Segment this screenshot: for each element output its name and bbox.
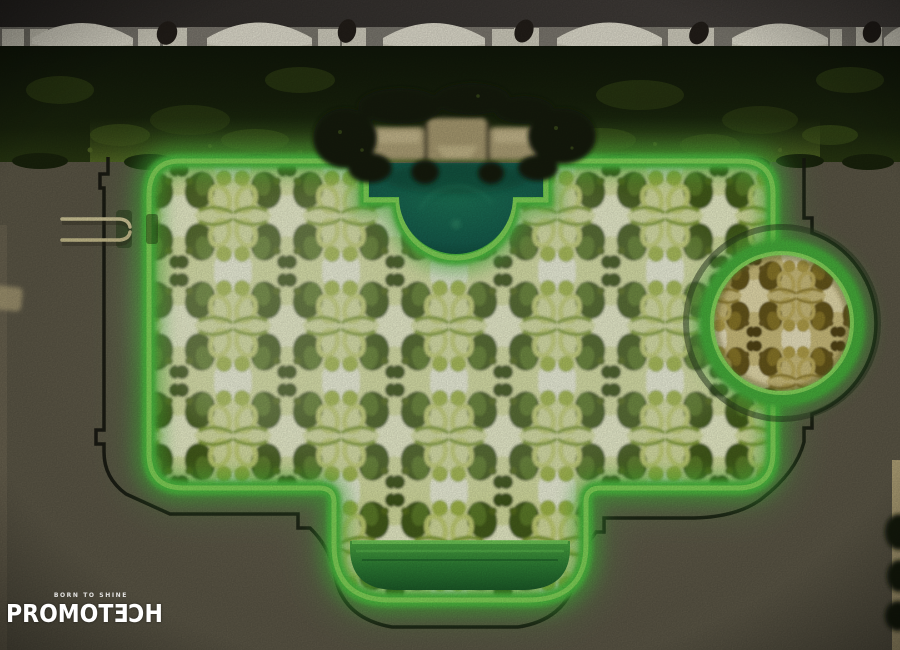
photo-canvas bbox=[0, 0, 900, 650]
watermark-brand: PROMOTƎƆH bbox=[6, 601, 115, 626]
aerial-pool-photo: BORN TO SHINE PROMOTƎƆH bbox=[0, 0, 900, 650]
watermark: BORN TO SHINE PROMOTƎƆH bbox=[6, 592, 130, 626]
vignette bbox=[0, 0, 900, 650]
